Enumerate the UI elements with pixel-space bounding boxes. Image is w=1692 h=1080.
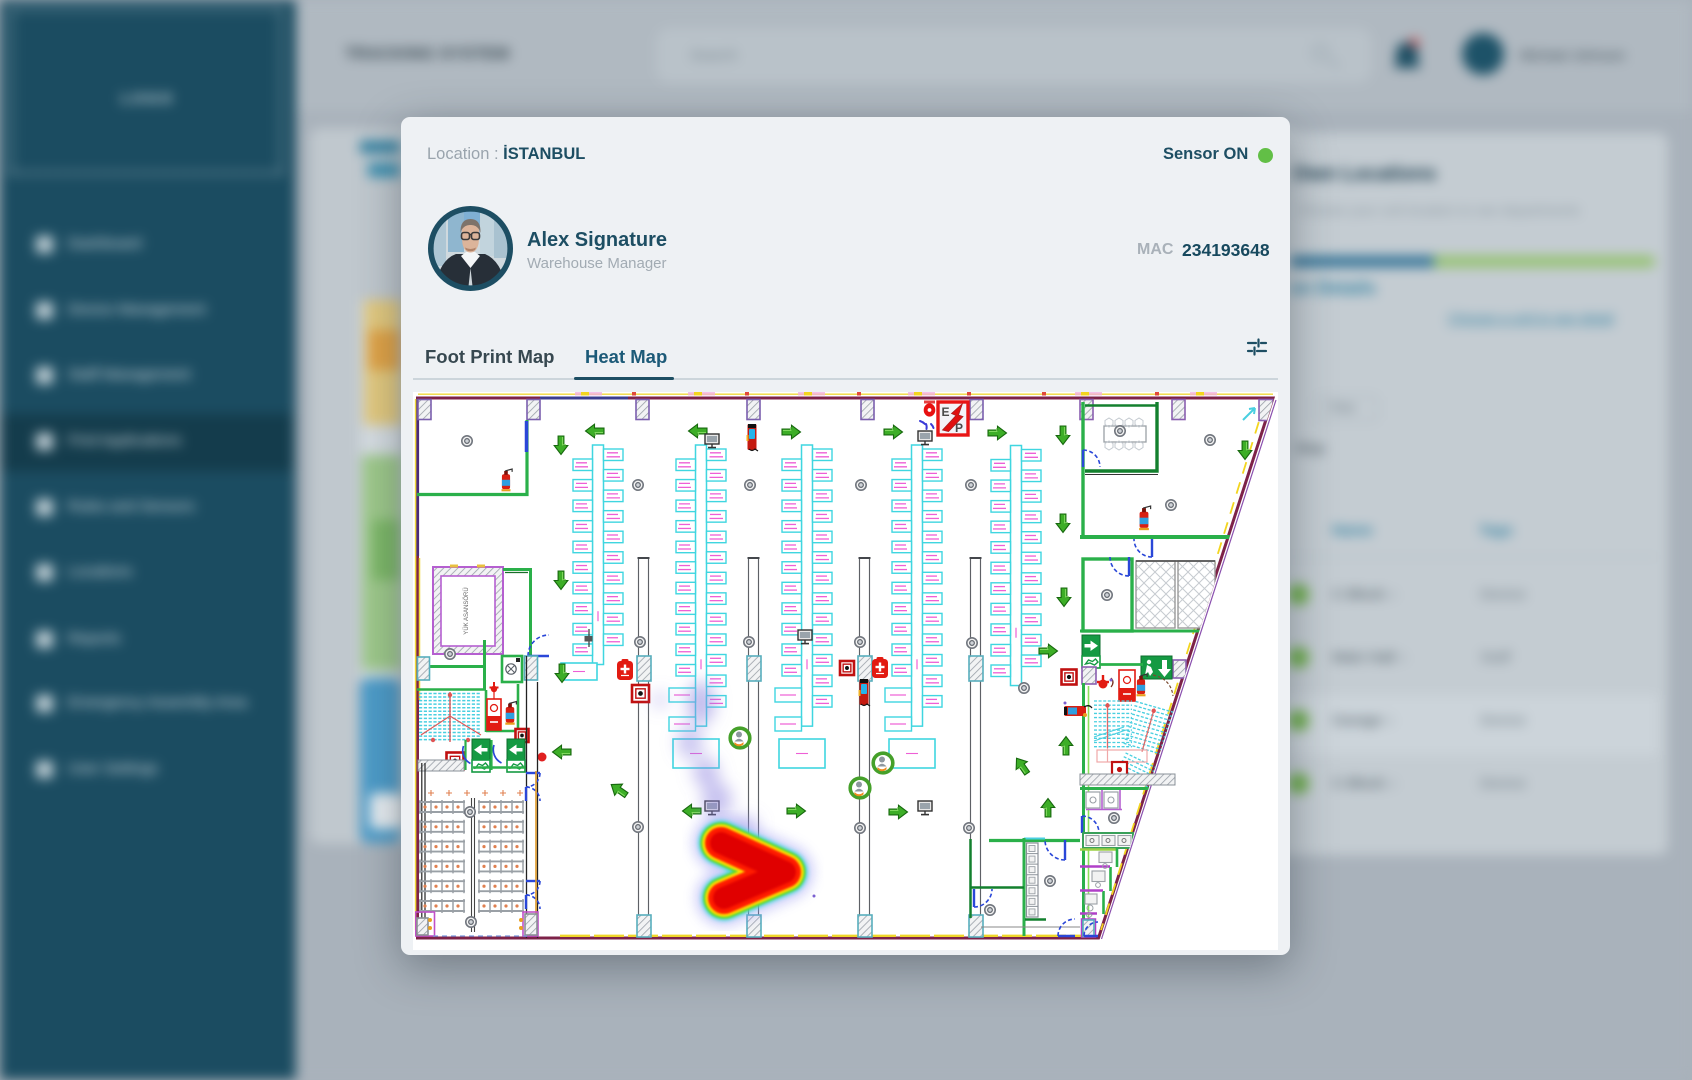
- svg-text:E: E: [942, 405, 950, 419]
- svg-text:YÜK ASANSÖRÜ: YÜK ASANSÖRÜ: [463, 587, 470, 634]
